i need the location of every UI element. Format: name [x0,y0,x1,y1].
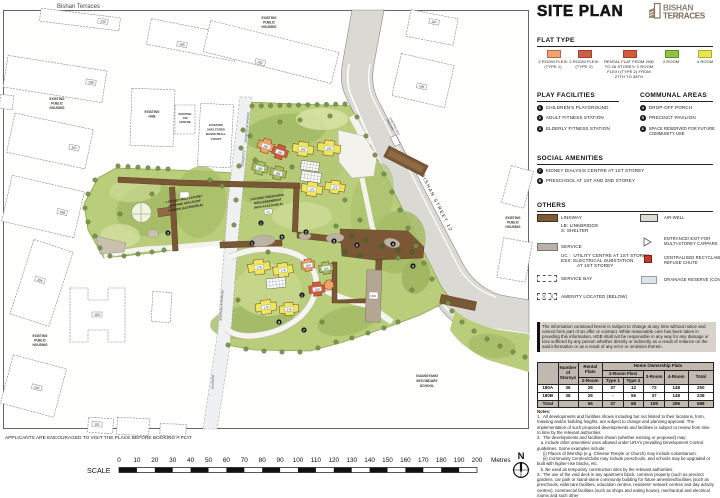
svg-text:1: 1 [260,221,262,225]
svg-text:EXISTING: EXISTING [506,216,521,220]
svg-text:172: 172 [332,185,338,190]
svg-text:130: 130 [346,457,357,464]
svg-text:180: 180 [323,266,329,271]
svg-text:174: 174 [309,187,315,192]
svg-text:2: 2 [251,241,253,245]
svg-text:EXISTING: EXISTING [50,97,65,101]
svg-text:180: 180 [436,457,447,464]
svg-text:180: 180 [305,263,311,268]
svg-text:8: 8 [278,320,280,324]
svg-text:10: 10 [133,457,141,464]
svg-text:200: 200 [472,457,483,464]
svg-text:40: 40 [187,457,195,464]
svg-text:3: 3 [333,239,335,243]
svg-text:160: 160 [400,457,411,464]
svg-text:100: 100 [293,457,304,464]
svg-text:PUBLIC: PUBLIC [507,221,520,225]
svg-text:140: 140 [364,457,375,464]
svg-text:181: 181 [94,423,100,427]
svg-text:50: 50 [205,457,213,464]
svg-text:176: 176 [280,268,286,273]
svg-text:HOUSING: HOUSING [50,106,65,110]
svg-text:20: 20 [151,457,159,464]
svg-text:60: 60 [223,457,231,464]
svg-text:HUB: HUB [149,115,157,119]
svg-text:EXISTING: EXISTING [262,16,277,20]
svg-text:180: 180 [314,287,320,292]
svg-text:CENTRE: CENTRE [179,120,191,124]
svg-text:EXISTING: EXISTING [33,334,48,338]
svg-text:Bishan Terraces: Bishan Terraces [57,4,100,10]
svg-text:HOUSING: HOUSING [262,25,277,29]
svg-text:SCALE: SCALE [87,466,111,475]
svg-text:7: 7 [303,328,305,332]
svg-text:APPLICANTS ARE ENCOURAGED TO V: APPLICANTS ARE ENCOURAGED TO VISIT THE P… [5,435,192,441]
svg-text:178: 178 [286,307,292,312]
svg-text:PUBLIC: PUBLIC [51,102,64,106]
svg-text:3: 3 [167,231,169,235]
svg-text:GUANGYANG: GUANGYANG [416,374,438,378]
svg-text:BASKETBALL: BASKETBALL [206,132,226,136]
svg-text:2: 2 [305,230,307,234]
svg-text:176: 176 [256,265,262,270]
svg-text:COURT: COURT [211,137,222,141]
svg-text:SHELTERED: SHELTERED [207,128,226,132]
svg-text:183: 183 [94,313,100,317]
svg-text:0: 0 [117,457,121,464]
svg-text:6: 6 [356,243,358,247]
svg-text:SECONDARY: SECONDARY [416,379,438,383]
svg-text:EXISTING: EXISTING [145,110,160,114]
svg-text:HOUSING: HOUSING [506,225,521,229]
svg-text:230: 230 [100,19,106,24]
svg-text:4: 4 [412,264,414,268]
svg-text:SCHOOL: SCHOOL [420,384,435,388]
svg-text:RESERVE: RESERVE [211,375,215,389]
svg-text:Metres: Metres [491,457,511,464]
svg-text:5: 5 [281,235,283,239]
svg-text:30: 30 [169,457,177,464]
svg-text:110: 110 [311,457,322,464]
svg-text:120: 120 [328,457,339,464]
svg-text:178: 178 [263,305,269,310]
svg-text:KSB: KSB [370,294,375,298]
svg-text:190: 190 [454,457,465,464]
svg-text:PUBLIC: PUBLIC [34,339,47,343]
svg-text:UC: UC [266,210,271,215]
svg-text:HOUSING: HOUSING [33,343,48,347]
svg-text:180: 180 [300,147,306,152]
svg-text:EXISTING: EXISTING [209,123,224,127]
svg-text:80: 80 [259,457,267,464]
svg-text:150: 150 [382,457,393,464]
svg-text:PUBLIC: PUBLIC [263,21,276,25]
svg-text:TERRACES: TERRACES [663,12,706,20]
svg-text:180: 180 [326,146,332,151]
svg-text:90: 90 [277,457,285,464]
svg-text:N: N [518,451,525,462]
svg-text:170: 170 [418,457,429,464]
svg-text:70: 70 [241,457,249,464]
svg-text:4: 4 [392,242,394,246]
svg-text:1: 1 [301,293,303,297]
